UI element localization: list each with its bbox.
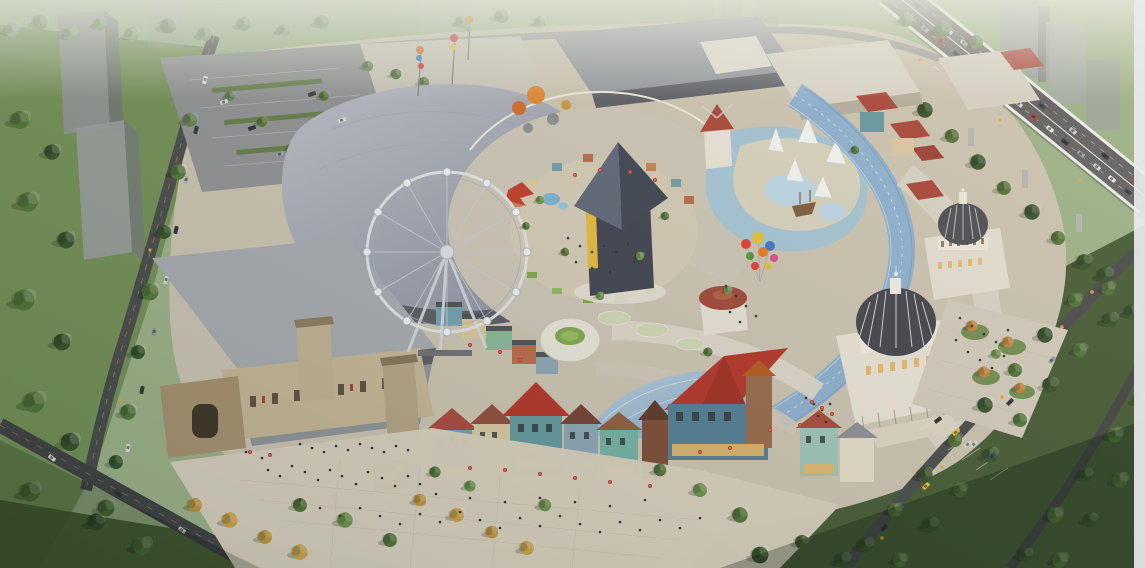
aerial-rendering: Aerial dusk rendering of a large open-ai…	[0, 0, 1145, 568]
right-edge-strip	[1134, 0, 1145, 568]
rendering-canvas: Aerial dusk rendering of a large open-ai…	[0, 0, 1145, 568]
